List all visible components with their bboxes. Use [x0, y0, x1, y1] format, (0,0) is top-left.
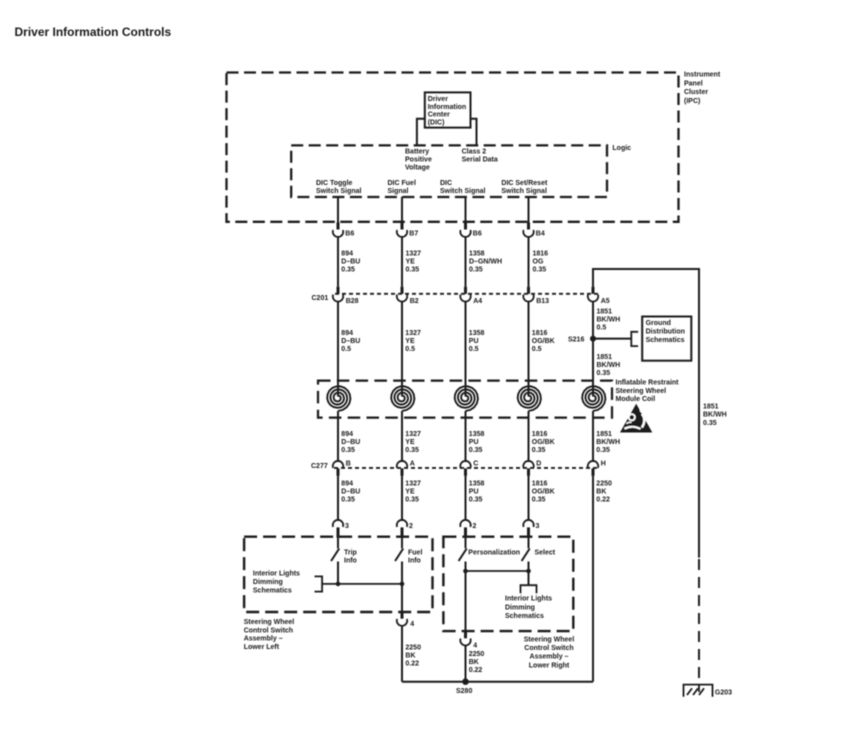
- svg-text:OG: OG: [533, 258, 544, 265]
- svg-text:0.5: 0.5: [597, 324, 607, 331]
- svg-text:1327: 1327: [405, 480, 421, 487]
- svg-text:B13: B13: [536, 298, 549, 305]
- svg-text:Select: Select: [535, 550, 556, 557]
- svg-text:BK: BK: [469, 659, 479, 666]
- svg-text:D: D: [536, 460, 541, 467]
- svg-text:894: 894: [341, 480, 353, 487]
- svg-text:Cluster: Cluster: [684, 89, 708, 96]
- svg-text:2250: 2250: [405, 644, 421, 651]
- svg-text:Interior Lights: Interior Lights: [253, 571, 300, 578]
- svg-text:Ground: Ground: [646, 320, 671, 327]
- svg-text:Info: Info: [408, 558, 421, 565]
- svg-text:Dimming: Dimming: [505, 604, 535, 611]
- svg-text:Driver: Driver: [428, 96, 449, 103]
- svg-text:894: 894: [341, 431, 353, 438]
- svg-text:BK/WH: BK/WH: [703, 412, 727, 419]
- svg-text:G203: G203: [715, 690, 732, 697]
- svg-text:Schematics: Schematics: [253, 588, 292, 595]
- svg-text:1851: 1851: [597, 354, 613, 361]
- svg-text:Info: Info: [344, 558, 357, 565]
- svg-text:0.35: 0.35: [469, 266, 483, 273]
- svg-text:Positive: Positive: [405, 157, 432, 164]
- svg-text:YE: YE: [405, 488, 415, 495]
- svg-text:Signal: Signal: [388, 188, 409, 195]
- svg-text:Information: Information: [428, 104, 467, 111]
- svg-text:1358: 1358: [469, 250, 485, 257]
- svg-text:Module Coil: Module Coil: [616, 396, 656, 403]
- svg-text:0.22: 0.22: [469, 667, 483, 674]
- svg-text:Voltage: Voltage: [405, 165, 430, 172]
- svg-text:Class 2: Class 2: [462, 149, 487, 156]
- svg-text:B6: B6: [473, 231, 482, 238]
- svg-text:Personalization: Personalization: [468, 550, 520, 557]
- svg-text:D–BU: D–BU: [341, 258, 360, 265]
- svg-text:1327: 1327: [405, 330, 421, 337]
- svg-text:OG/BK: OG/BK: [532, 338, 555, 345]
- svg-text:Schematics: Schematics: [646, 337, 685, 344]
- svg-text:C277: C277: [311, 463, 328, 470]
- svg-text:Dimming: Dimming: [253, 579, 283, 586]
- svg-text:1816: 1816: [532, 330, 548, 337]
- svg-text:A: A: [410, 460, 415, 467]
- svg-text:Control Switch: Control Switch: [244, 627, 293, 634]
- svg-text:DIC Toggle: DIC Toggle: [316, 180, 353, 187]
- svg-text:DIC Set/Reset: DIC Set/Reset: [501, 180, 548, 187]
- svg-text:0.35: 0.35: [341, 496, 355, 503]
- svg-text:B6: B6: [345, 231, 354, 238]
- svg-text:BK: BK: [596, 488, 606, 495]
- svg-text:3: 3: [345, 523, 349, 530]
- svg-text:PU: PU: [469, 338, 479, 345]
- svg-text:Switch Signal: Switch Signal: [316, 188, 362, 195]
- svg-text:Trip: Trip: [344, 550, 357, 557]
- svg-text:4: 4: [410, 621, 414, 628]
- svg-text:2250: 2250: [469, 651, 485, 658]
- svg-text:D–GN/WH: D–GN/WH: [469, 258, 502, 265]
- svg-text:OG/BK: OG/BK: [532, 439, 555, 446]
- svg-text:B4: B4: [536, 231, 545, 238]
- svg-text:YE: YE: [405, 338, 415, 345]
- svg-text:1358: 1358: [469, 330, 485, 337]
- svg-text:0.22: 0.22: [596, 496, 610, 503]
- svg-text:0.5: 0.5: [405, 346, 415, 353]
- svg-text:Steering Wheel: Steering Wheel: [244, 619, 295, 626]
- svg-text:B: B: [346, 460, 351, 467]
- svg-text:1327: 1327: [406, 250, 422, 257]
- svg-text:1816: 1816: [532, 431, 548, 438]
- svg-text:2: 2: [409, 523, 413, 530]
- svg-text:0.5: 0.5: [532, 346, 542, 353]
- svg-text:Switch Signal: Switch Signal: [440, 188, 486, 195]
- svg-text:0.22: 0.22: [405, 660, 419, 667]
- svg-text:Battery: Battery: [405, 149, 429, 156]
- svg-text:B2: B2: [410, 298, 419, 305]
- svg-text:Panel: Panel: [684, 80, 703, 87]
- svg-text:OG/BK: OG/BK: [532, 488, 555, 495]
- svg-text:PU: PU: [469, 439, 479, 446]
- svg-text:0.35: 0.35: [405, 447, 419, 454]
- svg-text:0.35: 0.35: [406, 266, 420, 273]
- svg-text:D–BU: D–BU: [341, 338, 360, 345]
- svg-text:S280: S280: [456, 688, 472, 695]
- svg-text:BK/WH: BK/WH: [597, 316, 621, 323]
- svg-text:Assembly –: Assembly –: [244, 636, 283, 643]
- svg-text:A4: A4: [473, 298, 482, 305]
- svg-text:Center: Center: [428, 112, 450, 119]
- svg-text:2: 2: [473, 523, 477, 530]
- svg-text:D–BU: D–BU: [341, 488, 360, 495]
- svg-text:0.35: 0.35: [703, 420, 717, 427]
- svg-text:2250: 2250: [596, 480, 612, 487]
- svg-text:1851: 1851: [597, 308, 613, 315]
- svg-text:1327: 1327: [405, 431, 421, 438]
- svg-text:BK: BK: [405, 652, 415, 659]
- svg-text:0.35: 0.35: [405, 496, 419, 503]
- svg-text:DIC Fuel: DIC Fuel: [388, 180, 416, 187]
- svg-text:B7: B7: [409, 231, 418, 238]
- svg-text:1851: 1851: [703, 403, 719, 410]
- svg-text:H: H: [601, 460, 606, 467]
- svg-text:Lower Right: Lower Right: [529, 662, 570, 669]
- svg-text:Instrument: Instrument: [684, 72, 721, 79]
- svg-text:1358: 1358: [469, 480, 485, 487]
- svg-text:0.35: 0.35: [597, 370, 611, 377]
- svg-text:C201: C201: [312, 295, 329, 302]
- svg-text:Lower Left: Lower Left: [244, 644, 280, 651]
- svg-text:Logic: Logic: [612, 145, 631, 152]
- svg-text:(IPC): (IPC): [684, 98, 700, 105]
- svg-text:3: 3: [536, 523, 540, 530]
- svg-text:4: 4: [473, 643, 477, 650]
- svg-text:1816: 1816: [533, 250, 549, 257]
- svg-text:Interior Lights: Interior Lights: [505, 596, 552, 603]
- svg-text:Steering Wheel: Steering Wheel: [616, 388, 667, 395]
- svg-text:0.5: 0.5: [341, 346, 351, 353]
- svg-text:Switch Signal: Switch Signal: [501, 188, 547, 195]
- svg-text:1358: 1358: [469, 431, 485, 438]
- svg-text:894: 894: [341, 330, 353, 337]
- svg-text:PU: PU: [469, 488, 479, 495]
- svg-text:894: 894: [341, 250, 353, 257]
- svg-text:0.35: 0.35: [533, 266, 547, 273]
- svg-text:Fuel: Fuel: [408, 550, 422, 557]
- svg-text:D–BU: D–BU: [341, 439, 360, 446]
- svg-text:(DIC): (DIC): [428, 119, 445, 126]
- svg-text:Distribution: Distribution: [646, 329, 685, 336]
- svg-text:Schematics: Schematics: [505, 613, 544, 620]
- svg-text:Serial Data: Serial Data: [462, 157, 498, 164]
- svg-text:Control Switch: Control Switch: [524, 645, 573, 652]
- svg-text:DIC: DIC: [440, 180, 452, 187]
- svg-text:0.5: 0.5: [469, 346, 479, 353]
- svg-text:0.35: 0.35: [341, 447, 355, 454]
- svg-text:B28: B28: [346, 298, 359, 305]
- svg-text:Driver Information Controls: Driver Information Controls: [15, 25, 172, 39]
- svg-text:YE: YE: [405, 439, 415, 446]
- svg-text:0.35: 0.35: [532, 496, 546, 503]
- svg-text:BK/WH: BK/WH: [596, 439, 620, 446]
- svg-text:C: C: [473, 460, 478, 467]
- svg-text:1851: 1851: [596, 431, 612, 438]
- svg-text:0.35: 0.35: [341, 266, 355, 273]
- svg-text:BK/WH: BK/WH: [597, 362, 621, 369]
- svg-text:YE: YE: [406, 258, 416, 265]
- svg-text:0.35: 0.35: [469, 496, 483, 503]
- svg-text:A5: A5: [601, 298, 610, 305]
- svg-text:Steering Wheel: Steering Wheel: [524, 636, 575, 643]
- svg-text:0.35: 0.35: [469, 447, 483, 454]
- svg-text:0.35: 0.35: [596, 447, 610, 454]
- svg-text:Assembly –: Assembly –: [530, 654, 569, 661]
- svg-text:Inflatable Restraint: Inflatable Restraint: [616, 380, 680, 387]
- svg-text:1816: 1816: [532, 480, 548, 487]
- svg-text:0.35: 0.35: [532, 447, 546, 454]
- svg-text:S216: S216: [568, 337, 584, 344]
